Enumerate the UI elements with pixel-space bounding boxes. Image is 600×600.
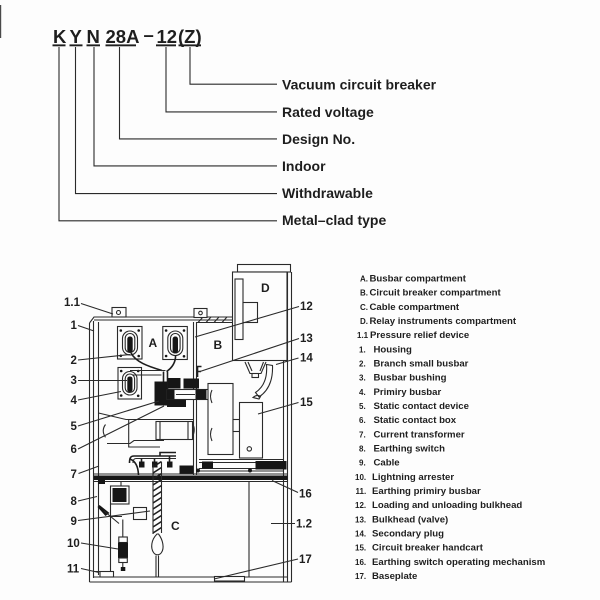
svg-text:2.: 2. [359, 360, 366, 369]
svg-text:Y: Y [70, 26, 83, 47]
svg-text:8.: 8. [359, 445, 366, 454]
svg-text:Current transformer: Current transformer [374, 429, 465, 440]
svg-text:14.: 14. [355, 530, 366, 539]
svg-text:12: 12 [300, 301, 313, 313]
svg-text:15: 15 [300, 397, 313, 409]
svg-text:4: 4 [71, 395, 78, 407]
svg-text:D.: D. [360, 317, 368, 326]
svg-text:Loading and unloading bulkhead: Loading and unloading bulkhead [372, 500, 522, 511]
svg-text:8: 8 [71, 496, 78, 508]
svg-text:1.: 1. [359, 345, 366, 354]
svg-text:D: D [261, 281, 270, 295]
svg-text:Baseplate: Baseplate [372, 571, 417, 582]
svg-text:9.: 9. [359, 459, 366, 468]
svg-text:9: 9 [71, 516, 77, 528]
svg-text:(Z): (Z) [178, 26, 202, 47]
svg-text:5.: 5. [359, 402, 366, 411]
svg-text:Bulkhead (valve): Bulkhead (valve) [372, 514, 448, 525]
svg-text:B: B [214, 338, 223, 352]
svg-text:Design No.: Design No. [282, 131, 355, 147]
svg-text:Relay instruments compartment: Relay instruments compartment [370, 316, 517, 327]
svg-text:17: 17 [299, 554, 312, 566]
svg-text:7.: 7. [359, 430, 366, 439]
svg-text:1: 1 [71, 320, 78, 332]
svg-text:Primiry busbar: Primiry busbar [374, 387, 442, 398]
svg-text:3: 3 [71, 375, 77, 387]
svg-text:Circuit breaker handcart: Circuit breaker handcart [372, 543, 484, 554]
svg-text:4.: 4. [359, 388, 366, 397]
svg-text:Rated voltage: Rated voltage [282, 104, 374, 120]
svg-text:6: 6 [71, 444, 77, 456]
svg-text:2: 2 [71, 355, 77, 367]
svg-text:1.2: 1.2 [296, 519, 312, 531]
svg-text:11: 11 [67, 564, 80, 576]
svg-text:Lightning arrester: Lightning arrester [372, 472, 454, 483]
svg-text:12.: 12. [355, 501, 366, 510]
svg-text:10.: 10. [355, 473, 366, 482]
svg-text:Pressure relief device: Pressure relief device [370, 330, 469, 341]
svg-text:A: A [149, 336, 158, 350]
svg-text:Branch small busbar: Branch small busbar [374, 359, 469, 370]
svg-text:11.: 11. [356, 487, 367, 496]
svg-text:7: 7 [71, 469, 77, 481]
svg-text:Busbar bushing: Busbar bushing [374, 373, 447, 384]
svg-text:1.1: 1.1 [357, 331, 369, 340]
svg-text:15.: 15. [355, 544, 366, 553]
svg-text:16.: 16. [355, 558, 366, 567]
svg-text:Withdrawable: Withdrawable [282, 185, 373, 201]
svg-text:13: 13 [300, 333, 313, 345]
svg-text:C: C [171, 519, 180, 533]
svg-text:N: N [87, 26, 100, 47]
svg-text:Static contact box: Static contact box [374, 415, 457, 426]
svg-text:17.: 17. [355, 572, 366, 581]
svg-text:Indoor: Indoor [282, 158, 326, 174]
svg-text:6.: 6. [359, 416, 366, 425]
svg-text:Static contact device: Static contact device [374, 401, 469, 412]
svg-text:14: 14 [300, 353, 313, 365]
svg-text:C.: C. [360, 303, 368, 312]
svg-text:K: K [53, 26, 67, 47]
svg-text:Earthing switch: Earthing switch [374, 444, 446, 455]
svg-text:–: – [144, 24, 154, 45]
svg-text:5: 5 [71, 421, 78, 433]
svg-text:Circuit breaker compartment: Circuit breaker compartment [370, 288, 502, 299]
svg-text:13.: 13. [355, 515, 366, 524]
svg-text:Busbar compartment: Busbar compartment [370, 274, 467, 285]
svg-text:10: 10 [67, 538, 80, 550]
svg-text:3.: 3. [359, 374, 366, 383]
svg-text:Metal–clad type: Metal–clad type [282, 212, 386, 228]
svg-text:Housing: Housing [374, 344, 413, 355]
svg-text:Cable: Cable [374, 458, 400, 469]
svg-text:1.1: 1.1 [64, 297, 81, 309]
svg-text:A.: A. [360, 275, 368, 284]
svg-text:Vacuum circuit breaker: Vacuum circuit breaker [282, 77, 437, 93]
svg-text:Cable compartment: Cable compartment [370, 302, 460, 313]
svg-text:B.: B. [360, 289, 368, 298]
svg-text:Secondary plug: Secondary plug [372, 529, 444, 540]
svg-text:16: 16 [299, 489, 312, 501]
svg-text:28A: 28A [106, 26, 140, 47]
svg-text:Earthing primiry busbar: Earthing primiry busbar [372, 486, 481, 497]
svg-text:12: 12 [157, 26, 178, 47]
svg-text:Earthing switch operating mech: Earthing switch operating mechanism [372, 557, 545, 568]
